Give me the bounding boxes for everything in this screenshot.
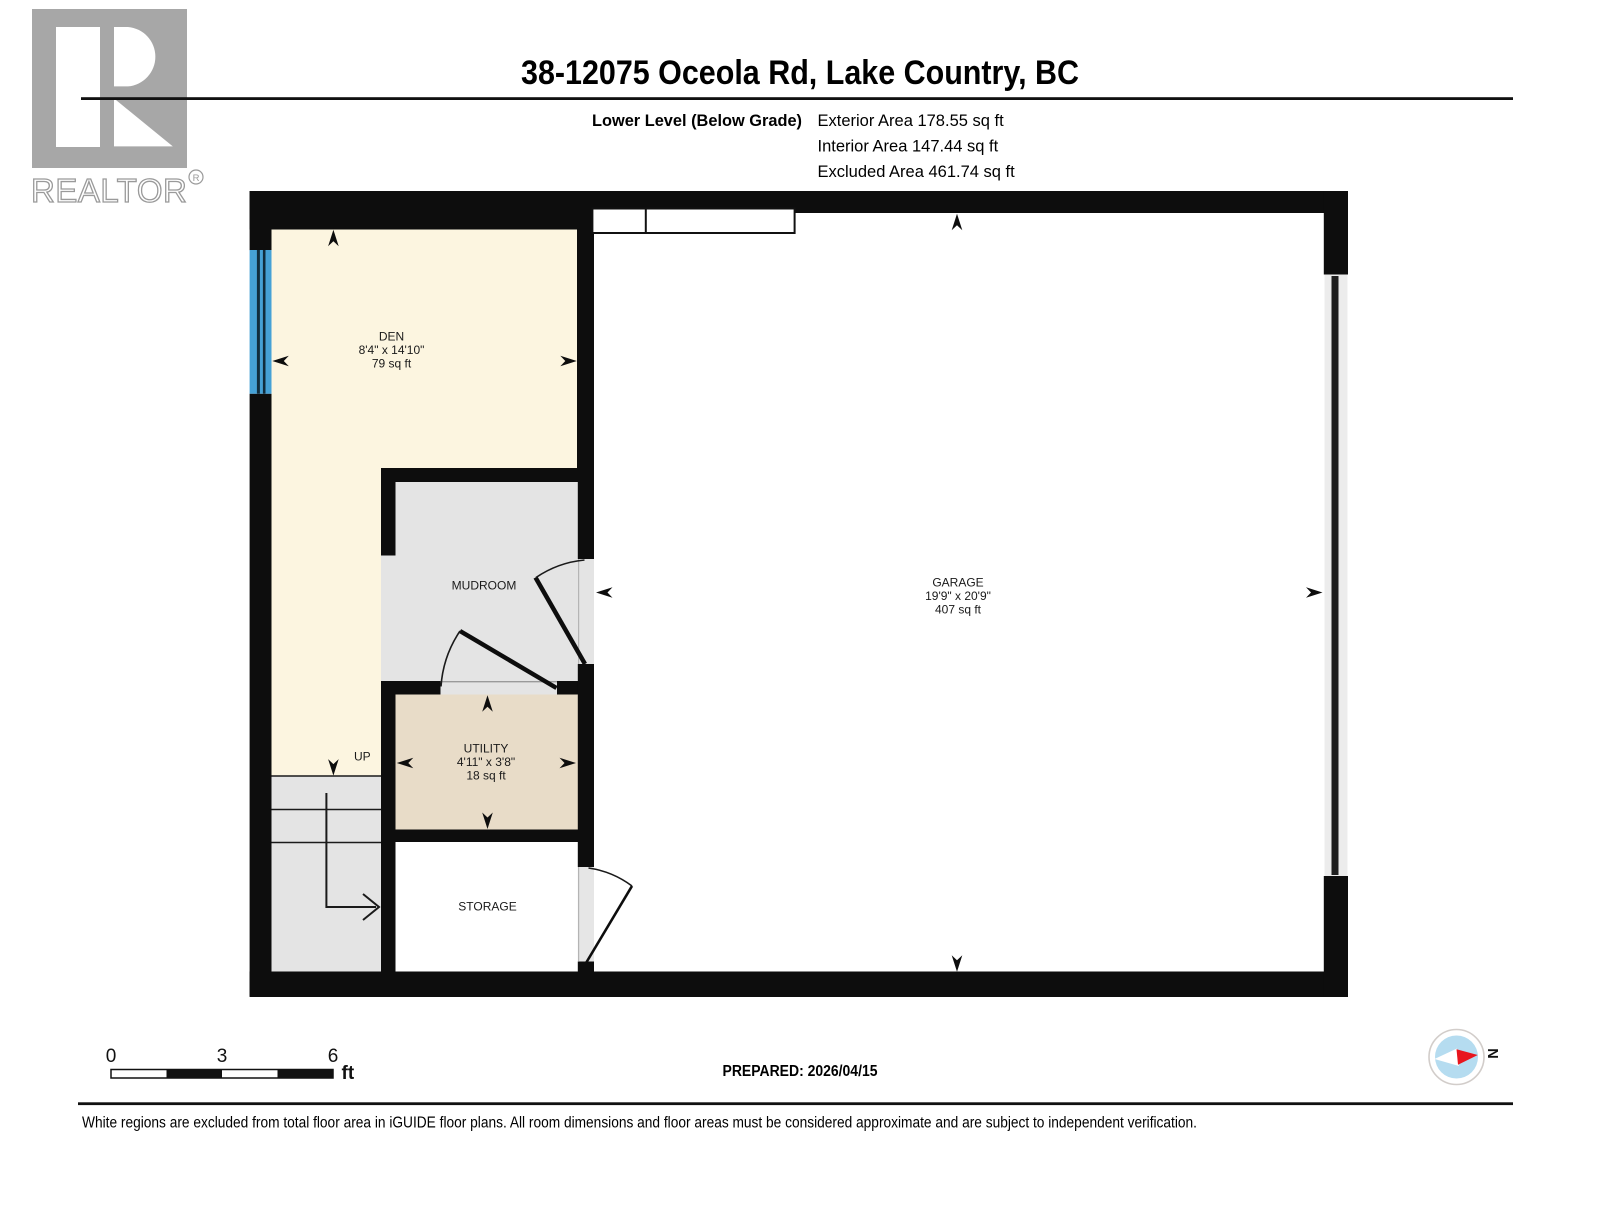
svg-text:3: 3 [217,1046,228,1067]
svg-text:407 sq ft: 407 sq ft [935,603,982,617]
svg-text:White regions are excluded fro: White regions are excluded from total fl… [82,1115,1197,1132]
svg-text:ft: ft [342,1063,355,1084]
svg-text:N: N [1484,1048,1500,1058]
svg-text:R: R [193,173,200,184]
svg-text:6: 6 [328,1046,339,1067]
svg-text:UTILITY: UTILITY [464,742,509,756]
svg-text:Lower Level (Below Grade): Lower Level (Below Grade) [592,112,802,130]
svg-text:DEN: DEN [379,330,404,344]
svg-text:19'9" x 20'9": 19'9" x 20'9" [925,589,991,603]
svg-text:18 sq ft: 18 sq ft [466,769,506,783]
svg-text:0: 0 [106,1046,117,1067]
svg-text:UP: UP [354,750,371,764]
svg-text:REALTOR: REALTOR [31,172,187,209]
svg-text:PREPARED: 2026/04/15: PREPARED: 2026/04/15 [723,1063,878,1080]
svg-text:79 sq ft: 79 sq ft [372,357,412,371]
svg-text:GARAGE: GARAGE [932,576,983,590]
svg-text:8'4" x 14'10": 8'4" x 14'10" [359,343,425,357]
svg-text:Excluded Area 461.74 sq ft: Excluded Area 461.74 sq ft [818,163,1016,181]
svg-text:38-12075 Oceola Rd, Lake Count: 38-12075 Oceola Rd, Lake Country, BC [521,54,1079,92]
svg-text:4'11" x 3'8": 4'11" x 3'8" [457,755,515,769]
svg-text:Exterior Area 178.55 sq ft: Exterior Area 178.55 sq ft [818,112,1005,130]
svg-text:MUDROOM: MUDROOM [452,579,517,593]
svg-text:Interior Area 147.44 sq ft: Interior Area 147.44 sq ft [818,138,999,156]
svg-text:STORAGE: STORAGE [458,900,516,914]
